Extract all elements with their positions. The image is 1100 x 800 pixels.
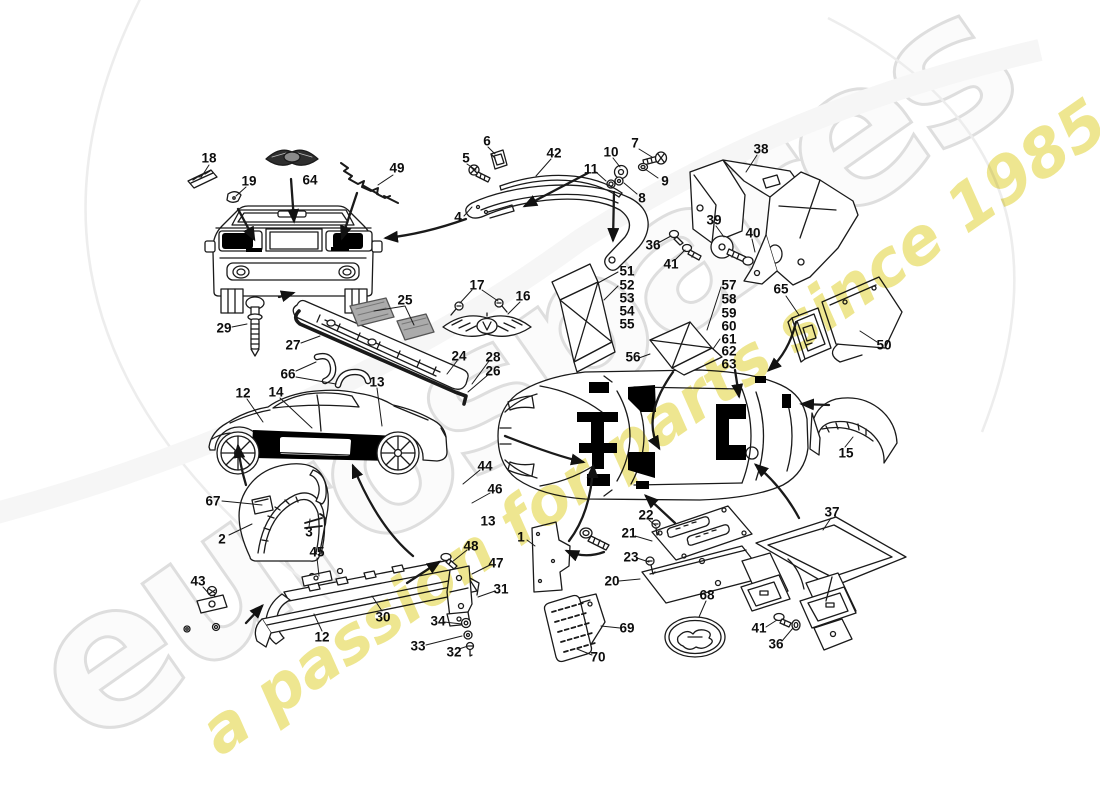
part-label-68: 68 — [699, 588, 714, 603]
part-label-48: 48 — [463, 539, 478, 554]
part-label-14: 14 — [268, 385, 283, 400]
part-label-24: 24 — [451, 349, 466, 364]
part-label-11: 11 — [584, 162, 598, 177]
part-label-44: 44 — [477, 459, 492, 474]
part-label-19: 19 — [241, 174, 256, 189]
part-label-1: 1 — [517, 530, 525, 545]
part-label-41: 41 — [663, 257, 678, 272]
part-label-45: 45 — [309, 545, 324, 560]
part-label-64: 64 — [302, 173, 317, 188]
part-label-9: 9 — [661, 174, 669, 189]
part-label-43: 43 — [190, 574, 205, 589]
part-label-38: 38 — [753, 142, 768, 157]
part-label-58: 58 — [721, 292, 736, 307]
part-label-6: 6 — [483, 134, 491, 149]
part-label-7: 7 — [631, 136, 639, 151]
part-label-15: 15 — [838, 446, 853, 461]
part-label-51: 51 — [619, 264, 634, 279]
part-label-55: 55 — [619, 317, 634, 332]
part-label-28: 28 — [485, 350, 500, 365]
part-label-10: 10 — [603, 145, 618, 160]
part-label-70: 70 — [590, 650, 605, 665]
part-label-16: 16 — [515, 289, 530, 304]
part-label-13: 13 — [369, 375, 384, 390]
part-label-17: 17 — [469, 278, 484, 293]
part-label-20: 20 — [604, 574, 619, 589]
part-label-32: 32 — [446, 645, 461, 660]
part-label-63: 63 — [721, 357, 736, 372]
part-label-69: 69 — [619, 621, 634, 636]
part-label-49: 49 — [389, 161, 404, 176]
part-label-5: 5 — [462, 151, 470, 166]
part-label-39: 39 — [706, 213, 721, 228]
part-labels-layer: 1819644956421110798384364139402927251716… — [0, 0, 1100, 800]
part-label-3: 3 — [305, 525, 313, 540]
part-label-23: 23 — [623, 550, 638, 565]
part-label-13: 13 — [480, 514, 495, 529]
part-label-12: 12 — [314, 630, 329, 645]
part-label-8: 8 — [638, 191, 646, 206]
part-label-29: 29 — [216, 321, 231, 336]
part-label-21: 21 — [621, 526, 636, 541]
part-label-34: 34 — [430, 614, 445, 629]
part-label-27: 27 — [285, 338, 300, 353]
part-label-36: 36 — [645, 238, 660, 253]
part-label-50: 50 — [876, 338, 891, 353]
part-label-65: 65 — [773, 282, 788, 297]
part-label-37: 37 — [824, 505, 839, 520]
part-label-46: 46 — [487, 482, 502, 497]
part-label-47: 47 — [488, 556, 503, 571]
part-label-31: 31 — [493, 582, 508, 597]
part-label-22: 22 — [638, 508, 653, 523]
part-label-4: 4 — [454, 210, 462, 225]
part-label-26: 26 — [485, 364, 500, 379]
part-label-67: 67 — [205, 494, 220, 509]
part-label-40: 40 — [745, 226, 760, 241]
part-label-36: 36 — [768, 637, 783, 652]
part-label-18: 18 — [201, 151, 216, 166]
part-label-57: 57 — [721, 278, 736, 293]
part-label-30: 30 — [375, 610, 390, 625]
part-label-42: 42 — [546, 146, 561, 161]
part-label-25: 25 — [397, 293, 412, 308]
part-label-33: 33 — [410, 639, 425, 654]
parts-diagram-page: eurospares — [0, 0, 1100, 800]
part-label-56: 56 — [625, 350, 640, 365]
part-label-41: 41 — [751, 621, 766, 636]
part-label-66: 66 — [280, 367, 295, 382]
part-label-12: 12 — [235, 386, 250, 401]
part-label-2: 2 — [218, 532, 226, 547]
